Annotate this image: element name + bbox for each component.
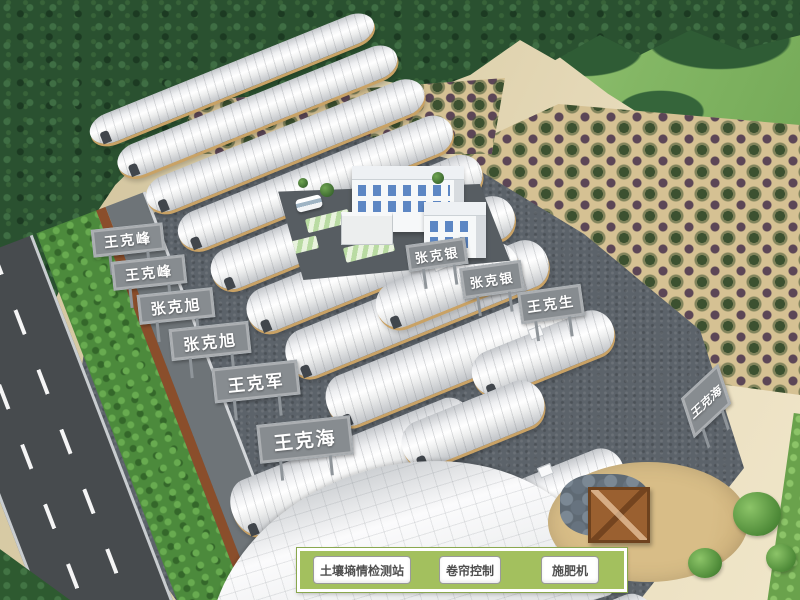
farm-scene: 王克峰 王克峰 张克旭 张克旭 王克军 王克海 张克银 张克银 王克生 王克海 … xyxy=(0,0,800,600)
roller-shutter-control-button[interactable]: 卷帘控制 xyxy=(439,556,501,584)
tree xyxy=(320,183,334,197)
control-toolbar: 土壤墒情检测站 卷帘控制 施肥机 xyxy=(297,548,627,592)
tree xyxy=(432,172,444,184)
soil-moisture-station-button[interactable]: 土壤墒情检测站 xyxy=(313,556,411,584)
entrance-canopy xyxy=(341,212,393,245)
building-roof xyxy=(424,202,486,216)
building-windows xyxy=(358,185,450,196)
building-windows xyxy=(430,221,472,232)
wooden-gazebo xyxy=(588,487,650,543)
building-roof xyxy=(352,166,464,180)
bush xyxy=(766,544,796,572)
tree xyxy=(298,178,308,188)
bush xyxy=(733,492,781,536)
fertilizer-machine-button[interactable]: 施肥机 xyxy=(541,556,599,584)
bush xyxy=(688,548,722,578)
